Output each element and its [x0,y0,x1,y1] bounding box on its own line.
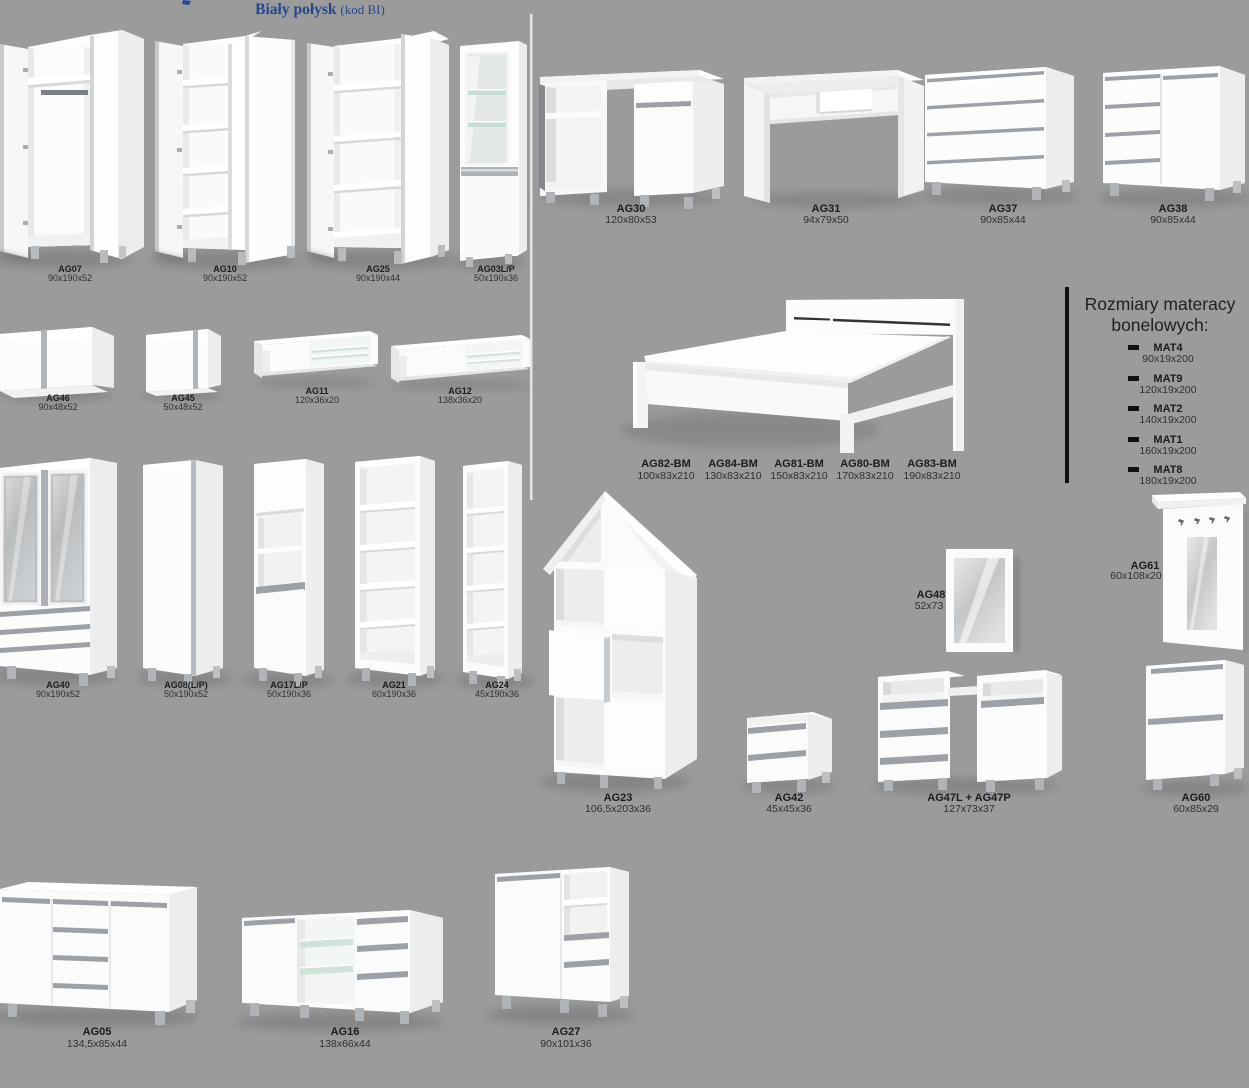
svg-text:50x190x36: 50x190x36 [474,273,518,283]
svg-text:50x190x52: 50x190x52 [164,689,208,699]
svg-text:60x85x29: 60x85x29 [1173,803,1219,815]
svg-text:94x79x50: 94x79x50 [803,214,849,226]
svg-text:130x83x210: 130x83x210 [704,470,761,482]
svg-text:150x83x210: 150x83x210 [770,470,827,482]
svg-text:AG83-BM: AG83-BM [907,458,957,470]
svg-text:140x19x200: 140x19x200 [1139,414,1196,426]
svg-text:90x85x44: 90x85x44 [980,214,1026,226]
svg-text:90x190x52: 90x190x52 [36,689,80,699]
svg-text:120x19x200: 120x19x200 [1139,384,1196,396]
svg-text:45x45x36: 45x45x36 [766,803,812,815]
svg-text:138x36x20: 138x36x20 [438,395,482,405]
svg-text:AG27: AG27 [552,1026,581,1038]
svg-text:AG16: AG16 [331,1026,360,1038]
svg-text:170x83x210: 170x83x210 [836,470,893,482]
svg-text:120x36x20: 120x36x20 [295,395,339,405]
svg-text:Biały połysk (kod BI): Biały połysk (kod BI) [255,1,385,18]
svg-text:Rozmiary materacy: Rozmiary materacy [1085,294,1236,314]
svg-text:52x73: 52x73 [915,600,944,612]
svg-text:50x190x36: 50x190x36 [267,689,311,699]
svg-text:AG05: AG05 [83,1026,112,1038]
svg-text:50x48x52: 50x48x52 [163,402,202,412]
svg-text:60x190x36: 60x190x36 [372,689,416,699]
svg-text:AG81-BM: AG81-BM [774,458,824,470]
svg-text:90x48x52: 90x48x52 [38,402,77,412]
svg-text:120x80x53: 120x80x53 [605,214,657,226]
svg-text:90x19x200: 90x19x200 [1142,353,1194,365]
svg-text:AG84-BM: AG84-BM [708,458,758,470]
svg-text:190x83x210: 190x83x210 [903,470,960,482]
svg-text:138x66x44: 138x66x44 [319,1038,371,1050]
svg-text:134,5x85x44: 134,5x85x44 [67,1038,127,1050]
svg-text:60x108x20: 60x108x20 [1110,570,1162,582]
svg-text:AG82-BM: AG82-BM [641,458,691,470]
svg-text:160x19x200: 160x19x200 [1139,445,1196,457]
svg-text:90x190x52: 90x190x52 [48,273,92,283]
svg-text:90x190x44: 90x190x44 [356,273,400,283]
svg-text:90x85x44: 90x85x44 [1150,214,1196,226]
svg-text:45x190x36: 45x190x36 [475,689,519,699]
svg-text:100x83x210: 100x83x210 [637,470,694,482]
svg-text:106,5x203x36: 106,5x203x36 [585,803,651,815]
svg-text:AG80-BM: AG80-BM [840,458,890,470]
svg-text:180x19x200: 180x19x200 [1139,475,1196,487]
svg-text:90x190x52: 90x190x52 [203,273,247,283]
svg-text:127x73x37: 127x73x37 [943,803,995,815]
svg-text:90x101x36: 90x101x36 [540,1038,592,1050]
svg-text:bonelowych:: bonelowych: [1111,315,1208,335]
